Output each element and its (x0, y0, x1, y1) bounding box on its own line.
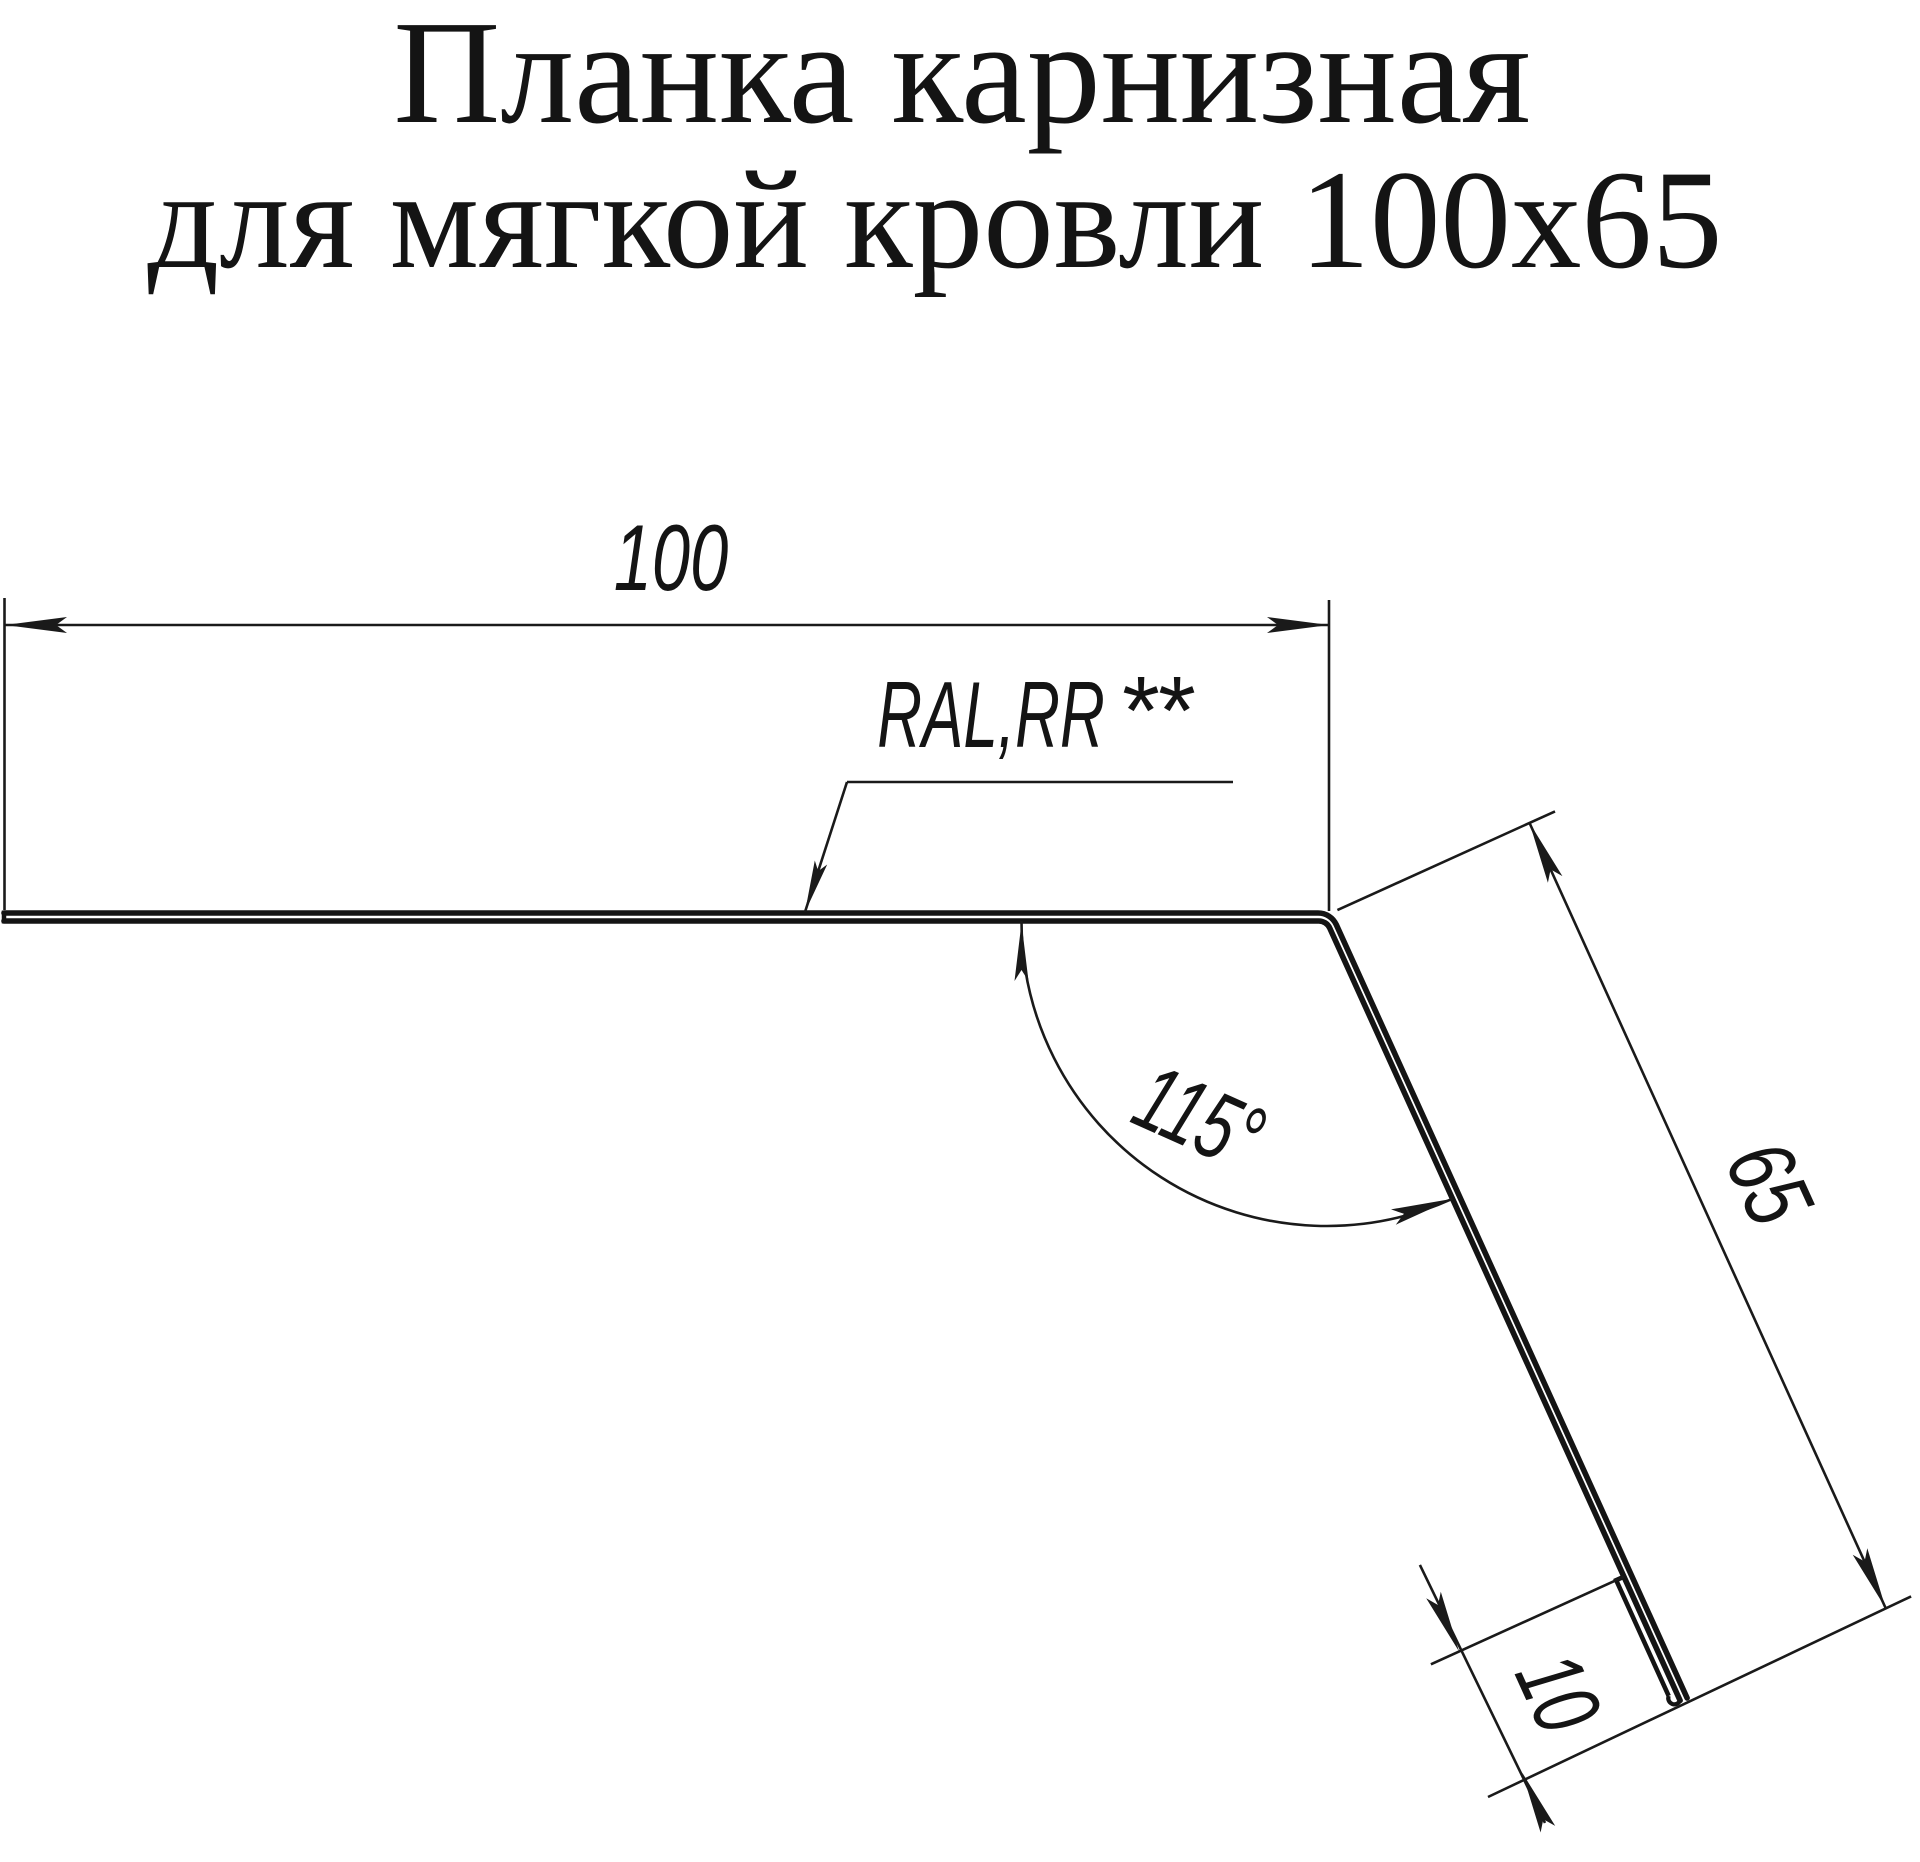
svg-text:115°: 115° (1119, 1044, 1278, 1192)
svg-text:RAL,RR: RAL,RR (877, 662, 1104, 767)
svg-text:*: * (1154, 656, 1195, 765)
svg-text:для мягкой кровли 100х65: для мягкой кровли 100х65 (148, 142, 1723, 298)
svg-text:10: 10 (1495, 1638, 1620, 1748)
svg-text:Планка карнизная: Планка карнизная (393, 0, 1530, 155)
svg-text:65: 65 (1705, 1126, 1834, 1241)
svg-text:100: 100 (614, 507, 729, 611)
svg-text:*: * (1118, 656, 1159, 765)
